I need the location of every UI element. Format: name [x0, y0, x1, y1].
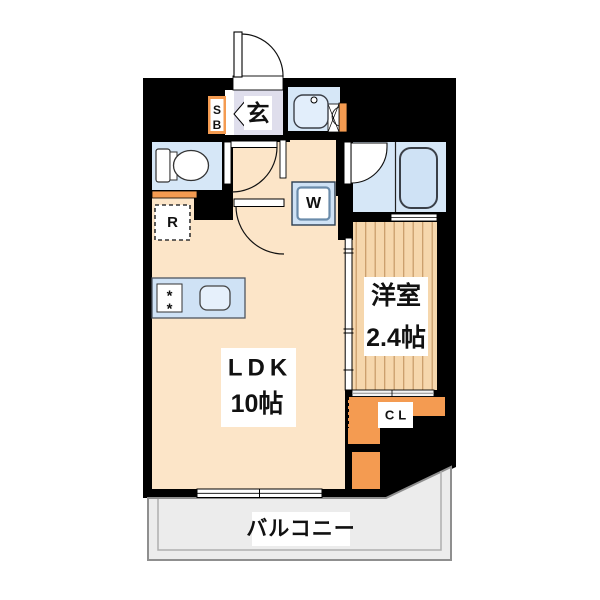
entrance-label: 玄 — [244, 96, 272, 130]
ldk-label: LDK 10帖 — [221, 348, 296, 427]
western-room-size: 2.4帖 — [366, 324, 426, 352]
floor-plan-page: * * W R S B 玄 CL — [0, 0, 600, 600]
floor-plan: * * W R S B 玄 CL — [0, 0, 600, 600]
western-room-name: 洋室 — [371, 281, 421, 310]
corridor-partition-fin — [280, 140, 286, 178]
kitchen-sink-icon — [200, 286, 230, 310]
refrigerator-label: R — [167, 214, 178, 231]
bathroom-door-leaf — [344, 142, 351, 184]
washbasin-side-panel — [339, 103, 347, 132]
shoe-box: S B — [208, 96, 226, 134]
western-room-label: 洋室 2.4帖 — [364, 277, 428, 356]
closet-label: CL — [378, 402, 413, 428]
stove-burner-glyph: * — [167, 301, 173, 318]
closet-label-text: CL — [385, 408, 410, 423]
entrance-step — [225, 90, 234, 136]
entrance-door-swing-arc — [242, 34, 283, 77]
faucet-dot — [311, 97, 317, 103]
washing-machine-box: W — [292, 182, 335, 225]
balcony-label: バルコニー — [246, 512, 356, 546]
toilet-door — [224, 142, 231, 184]
ldk-name: LDK — [228, 355, 292, 382]
ldk-door-leaf — [234, 199, 284, 207]
balcony-window — [197, 489, 322, 498]
refrigerator-box: R — [155, 205, 190, 240]
balcony-label-text: バルコニー — [246, 518, 356, 541]
entrance-door — [233, 32, 283, 90]
counter-shelf — [152, 191, 197, 198]
entrance-label-text: 玄 — [247, 100, 270, 126]
hall-door-leaf — [231, 141, 277, 148]
entrance-door-opening — [233, 76, 283, 90]
shoe-box-label-b: B — [213, 118, 222, 132]
entrance-door-leaf — [234, 32, 242, 77]
kitchen-counter: * * — [152, 278, 245, 318]
washing-machine-label: W — [306, 195, 322, 212]
ldk-size: 10帖 — [231, 390, 284, 418]
shoe-box-label-s: S — [213, 103, 221, 117]
pipe-space-box — [328, 104, 339, 132]
bathtub-icon — [400, 148, 437, 208]
toilet-icon — [156, 149, 209, 182]
